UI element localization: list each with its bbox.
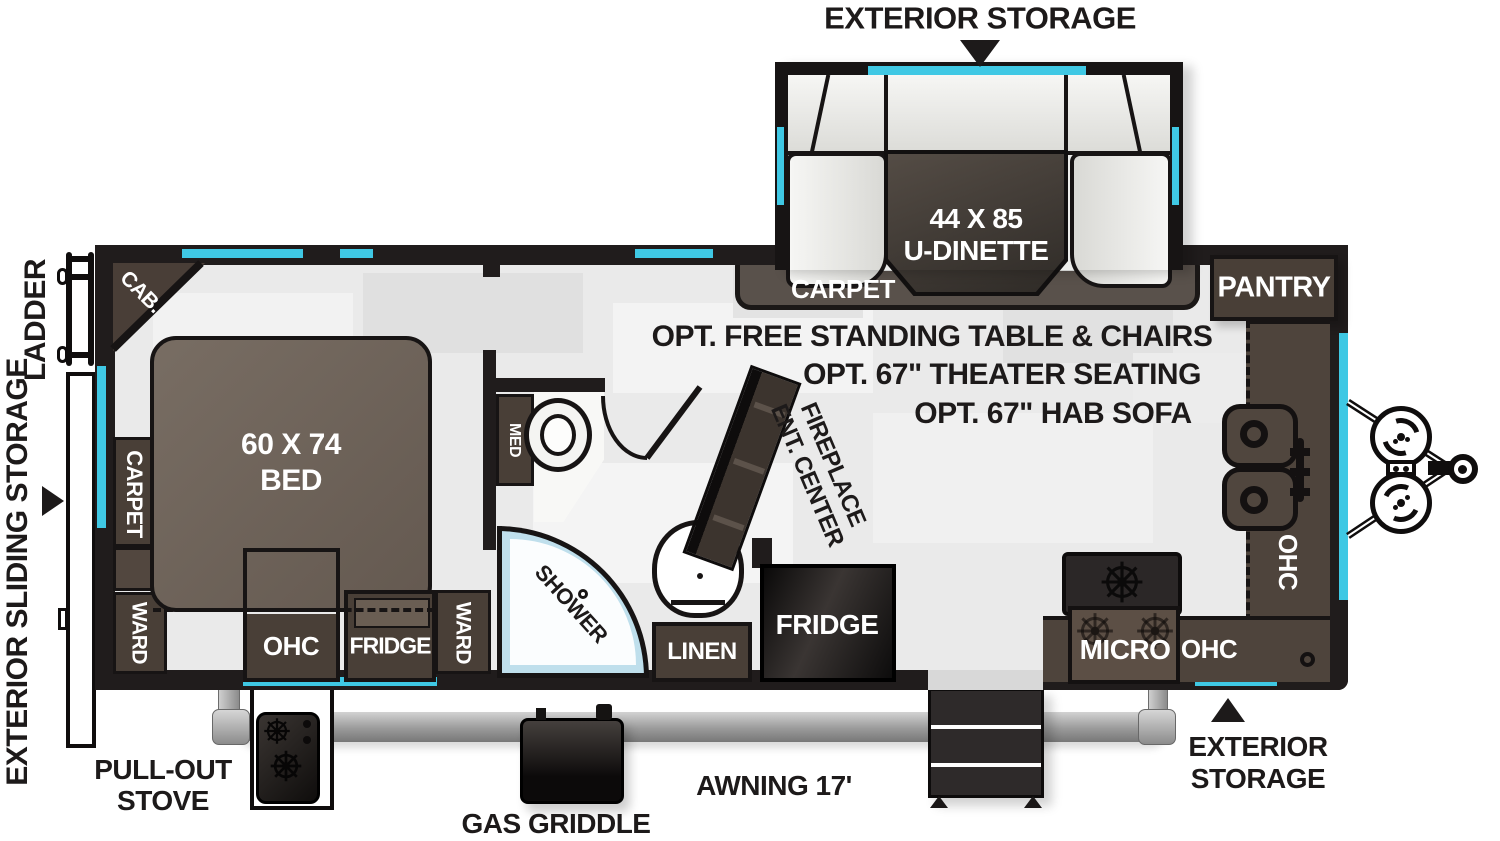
window bbox=[1172, 127, 1179, 205]
cabinet-knob bbox=[1300, 652, 1315, 667]
window bbox=[182, 249, 303, 258]
label-micro: MICRO bbox=[1080, 636, 1171, 664]
label-bed: BED bbox=[260, 466, 322, 496]
label-awning: AWNING 17' bbox=[696, 772, 852, 800]
label-carpet-slide: CARPET bbox=[791, 276, 895, 302]
label-dinette-size: 44 X 85 bbox=[929, 205, 1022, 233]
label-options-3: OPT. 67" HAB SOFA bbox=[914, 399, 1191, 429]
sliding-storage-handle bbox=[58, 608, 68, 630]
stove-knob bbox=[303, 720, 311, 728]
floorplan-canvas: EXTERIOR STORAGE LADDER EXTERIOR SLIDING… bbox=[0, 0, 1500, 841]
window bbox=[97, 366, 106, 528]
label-fridge-main: FRIDGE bbox=[776, 611, 879, 639]
ohc-bedroom bbox=[243, 548, 340, 682]
bathroom-wall-horizontal bbox=[483, 378, 605, 392]
cooktop-burner-icon bbox=[1098, 558, 1146, 606]
propane-tank-icon bbox=[1370, 472, 1432, 534]
sink-drain bbox=[1240, 420, 1268, 448]
label-exterior-storage-bottom-2: STORAGE bbox=[1191, 765, 1325, 793]
down-arrow-icon bbox=[960, 40, 1000, 67]
step-foot-left bbox=[930, 796, 948, 808]
bathroom-sink-bowl bbox=[540, 414, 576, 456]
label-ward-left: WARD bbox=[129, 602, 150, 664]
propane-tank-icon bbox=[1370, 406, 1432, 468]
label-options-1: OPT. FREE STANDING TABLE & CHAIRS bbox=[652, 322, 1213, 352]
gas-griddle bbox=[520, 718, 624, 804]
label-fridge-bedroom: FRIDGE bbox=[350, 635, 431, 658]
window bbox=[635, 249, 713, 258]
label-gas-griddle: GAS GRIDDLE bbox=[462, 810, 651, 838]
label-exterior-sliding-storage: EXTERIOR SLIDING STORAGE bbox=[3, 358, 33, 786]
label-med: MED bbox=[506, 423, 522, 457]
griddle-handle bbox=[596, 704, 612, 720]
sliding-storage-tray bbox=[66, 372, 96, 748]
entry-threshold bbox=[928, 670, 1043, 690]
up-arrow-icon bbox=[1211, 698, 1245, 722]
window bbox=[1339, 333, 1348, 600]
label-exterior-storage-bottom-1: EXTERIOR bbox=[1188, 733, 1327, 761]
stove-burner-icon bbox=[268, 748, 304, 784]
entry-steps bbox=[928, 688, 1044, 798]
label-carpet-bedroom: CARPET bbox=[123, 450, 145, 537]
window bbox=[340, 249, 373, 258]
label-ohc-counter: OHC bbox=[1275, 534, 1301, 590]
awning-endcap-left bbox=[212, 709, 250, 745]
faucet-icon bbox=[1290, 488, 1310, 496]
sink-drain bbox=[1240, 486, 1268, 514]
right-arrow-icon bbox=[42, 486, 64, 516]
label-dinette: U-DINETTE bbox=[904, 237, 1049, 265]
label-bed-size: 60 X 74 bbox=[241, 430, 341, 460]
label-options-2: OPT. 67" THEATER SEATING bbox=[803, 360, 1201, 390]
label-pull-out-stove-1: PULL-OUT bbox=[94, 756, 232, 784]
faucet-icon bbox=[1290, 448, 1310, 456]
stove-knob bbox=[303, 736, 311, 744]
awning-endcap-right bbox=[1138, 709, 1176, 745]
stove-burner-icon bbox=[262, 716, 292, 746]
label-ward-right: WARD bbox=[453, 602, 474, 664]
label-ohc-kitchen: OHC bbox=[1181, 636, 1237, 662]
label-pantry: PANTRY bbox=[1218, 274, 1331, 303]
label-ohc-bedroom: OHC bbox=[263, 633, 319, 659]
label-linen: LINEN bbox=[667, 640, 737, 664]
window bbox=[868, 66, 1086, 75]
bed-slide-dashed-line bbox=[153, 608, 435, 612]
bathroom-wall-stub bbox=[483, 263, 500, 277]
hitch-coupler-icon bbox=[1448, 454, 1478, 484]
propane-valve bbox=[1386, 460, 1416, 476]
griddle-handle bbox=[536, 708, 546, 720]
window bbox=[777, 127, 784, 205]
label-exterior-storage-top: EXTERIOR STORAGE bbox=[824, 3, 1136, 34]
step-foot-right bbox=[1024, 796, 1042, 808]
label-pull-out-stove-2: STOVE bbox=[117, 787, 209, 815]
faucet-icon bbox=[1290, 468, 1310, 476]
